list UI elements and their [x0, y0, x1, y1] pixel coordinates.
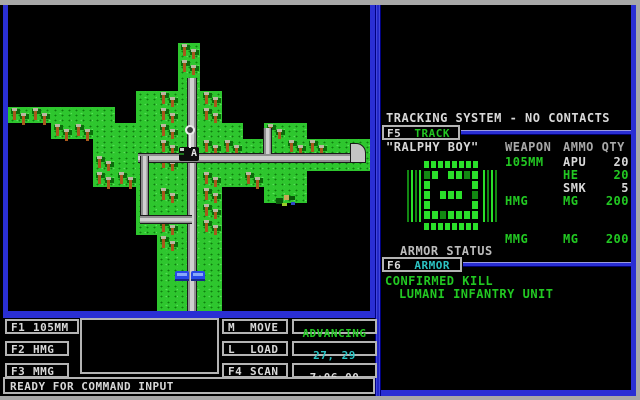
tree-trunk: [86, 132, 89, 141]
tree-trunk: [162, 191, 165, 200]
armor-body-block: [456, 191, 462, 199]
tree-trunk: [34, 111, 37, 120]
key-cap: F1: [11, 322, 33, 333]
armor-rear-block: [459, 223, 464, 230]
armor-rear-block: [438, 223, 443, 230]
terrain-tile: [200, 283, 222, 299]
key-f3-button[interactable]: F3MMG: [5, 363, 69, 378]
key-f4-button[interactable]: F4SCAN: [222, 363, 288, 378]
tree-trunk: [205, 143, 208, 152]
map-viewport[interactable]: A: [8, 5, 370, 311]
kill-confirmation-line2: LUMANI INFANTRY UNIT: [399, 288, 554, 300]
tree-trunk: [98, 159, 101, 168]
tree-icon: [253, 177, 263, 190]
tree-trunk: [290, 143, 293, 152]
armor-body-block: [440, 211, 446, 219]
terrain-tile: [285, 171, 307, 187]
ammo-qty: 20: [585, 169, 629, 181]
right-frame-bar: [636, 0, 640, 400]
tree-trunk: [205, 223, 208, 232]
terrain-tile: [200, 123, 222, 139]
terrain-tile: [157, 187, 179, 203]
movement-status-box: ADVANCING: [292, 319, 377, 334]
control-area: F1105MMF2HMGF3MMG MMOVELLOADF4SCAN ADVAN…: [3, 318, 375, 376]
armor-body-block: [472, 181, 478, 189]
key-label: LOAD: [250, 343, 279, 356]
armor-body-block: [472, 211, 478, 219]
tree-trunk: [162, 127, 165, 136]
terrain-tile: [157, 235, 179, 251]
ammo-qty: 200: [585, 195, 629, 207]
tree-trunk: [162, 143, 165, 152]
armor-body-block: [448, 171, 454, 179]
tree-icon: [104, 177, 114, 190]
armor-rear-block: [452, 223, 457, 230]
armor-body-block: [432, 211, 438, 219]
armor-rear-block: [424, 223, 429, 230]
tank-armor-icon: [407, 157, 499, 241]
armor-body-block: [440, 191, 446, 199]
terrain-tile: [51, 107, 73, 123]
tree-trunk: [162, 239, 165, 248]
armor-body-block: [448, 211, 454, 219]
armor-track-right: [487, 170, 489, 222]
tree-trunk: [311, 143, 314, 152]
terrain-tile: [115, 171, 137, 187]
armor-front-block: [431, 161, 436, 168]
map-cursor-icon[interactable]: [185, 125, 195, 135]
friendly-vehicle-unit[interactable]: [175, 271, 189, 281]
friendly-vehicle-unit[interactable]: [191, 271, 205, 281]
track-function-button[interactable]: F5 TRACK: [382, 125, 460, 140]
tree-trunk: [205, 95, 208, 104]
weapon-name: HMG: [505, 195, 557, 207]
armor-body-block: [424, 211, 430, 219]
tree-trunk: [205, 111, 208, 120]
key-l-button[interactable]: LLOAD: [222, 341, 288, 356]
player-tank-unit[interactable]: A: [179, 147, 199, 161]
weapon-name: MMG: [505, 233, 557, 245]
terrain-tile: [93, 155, 115, 171]
tank-gun: [179, 153, 184, 155]
key-label: 105MM: [33, 321, 69, 334]
terrain-tile: [285, 123, 307, 139]
terrain-tile: [200, 219, 222, 235]
armor-front-block: [459, 161, 464, 168]
terrain-tile: [200, 91, 222, 107]
armor-front-block: [473, 161, 478, 168]
road-segment: [140, 156, 149, 221]
infantry-figure: [291, 202, 295, 205]
armor-status-label: ARMOR STATUS: [400, 245, 493, 257]
terrain-tile: [200, 171, 222, 187]
terrain-tile: [178, 59, 200, 75]
f5-key-label: F5: [387, 127, 401, 140]
terrain-tile: [72, 107, 94, 123]
tracking-status-line: TRACKING SYSTEM - NO CONTACTS: [386, 112, 610, 124]
terrain-tile: [157, 123, 179, 139]
key-cap: F3: [11, 366, 33, 377]
tree-icon: [40, 113, 50, 126]
vehicle-tracks: [191, 279, 205, 281]
armor-body-block: [432, 171, 438, 179]
armor-body-block: [424, 171, 430, 179]
terrain-tile: [115, 155, 137, 171]
armor-body-block: [424, 201, 430, 209]
terrain-tile: [200, 251, 222, 267]
armor-track-left: [411, 170, 413, 222]
armor-body-block: [472, 171, 478, 179]
road-segment: [138, 153, 356, 163]
key-cap: F4: [228, 366, 250, 377]
key-cap: F2: [11, 344, 33, 355]
tree-trunk: [120, 175, 123, 184]
armor-rear-block: [431, 223, 436, 230]
road-segment: [350, 143, 366, 163]
terrain-tile: [29, 107, 51, 123]
armor-body-block: [472, 201, 478, 209]
armor-track-right: [495, 170, 497, 222]
terrain-tile: [157, 283, 179, 299]
terrain-tile: [157, 171, 179, 187]
key-m-button[interactable]: MMOVE: [222, 319, 288, 334]
tree-trunk: [129, 180, 132, 189]
mission-clock-box: 7:06.00: [292, 363, 377, 378]
tree-trunk: [247, 175, 250, 184]
coordinates-box: 27, 29: [292, 341, 377, 356]
armor-body-block: [456, 211, 462, 219]
tree-icon: [83, 129, 93, 142]
tree-trunk: [162, 111, 165, 120]
tree-trunk: [205, 207, 208, 216]
road-segment: [263, 128, 272, 154]
map-coordinates: 27, 29: [313, 349, 356, 362]
terrain-tile: [264, 171, 286, 187]
armor-rear-block: [473, 223, 478, 230]
terrain-tile: [93, 171, 115, 187]
terrain-tile: [200, 187, 222, 203]
terrain-tile: [93, 123, 115, 139]
terrain-tile: [136, 107, 158, 123]
armor-label: ARMOR: [414, 259, 450, 272]
armor-divider-line: [463, 262, 631, 267]
tree-trunk: [56, 127, 59, 136]
armor-front-block: [445, 161, 450, 168]
terrain-tile: [200, 107, 222, 123]
tracking-panel: TRACKING SYSTEM - NO CONTACTS F5 TRACK "…: [381, 5, 636, 396]
armor-track-left: [415, 170, 417, 222]
command-prompt-text: READY FOR COMMAND INPUT: [10, 381, 174, 392]
tree-trunk: [162, 95, 165, 104]
road-segment: [140, 215, 192, 224]
armor-body-block: [424, 181, 430, 189]
f6-key-label: F6: [387, 259, 401, 272]
terrain-tile: [242, 171, 264, 187]
armor-front-block: [424, 161, 429, 168]
weapon-name: 105MM: [505, 156, 557, 168]
terrain-tile: [157, 299, 179, 311]
tree-trunk: [226, 143, 229, 152]
terrain-tile: [115, 123, 137, 139]
ammo-qty-column-header: AMMO QTY: [563, 141, 625, 153]
tree-trunk: [98, 175, 101, 184]
armor-body-block: [464, 171, 470, 179]
message-display-box: [80, 318, 219, 374]
terrain-tile: [93, 107, 115, 123]
terrain-tile: [157, 251, 179, 267]
tree-trunk: [183, 47, 186, 56]
key-cap: L: [228, 344, 250, 355]
track-label: TRACK: [414, 127, 450, 140]
terrain-tile: [178, 43, 200, 59]
terrain-tile: [157, 107, 179, 123]
armor-track-left: [407, 170, 409, 222]
ammo-qty: 5: [585, 182, 629, 194]
key-cap: M: [228, 322, 250, 333]
armor-front-block: [452, 161, 457, 168]
armor-front-block: [466, 161, 471, 168]
terrain-tile: [200, 299, 222, 311]
vehicle-tracks: [175, 279, 189, 281]
armor-function-button[interactable]: F6 ARMOR: [382, 257, 462, 272]
bottom-frame-bar: [0, 396, 640, 400]
tree-icon: [126, 177, 136, 190]
tree-icon: [19, 113, 29, 126]
terrain-tile: [93, 139, 115, 155]
terrain-tile: [72, 123, 94, 139]
key-label: MOVE: [250, 321, 279, 334]
terrain-tile: [157, 91, 179, 107]
terrain-tile: [115, 139, 137, 155]
terrain-tile: [221, 123, 243, 139]
track-divider-line: [461, 130, 631, 135]
weapon-column-header: WEAPON: [505, 141, 551, 153]
tree-trunk: [22, 116, 25, 125]
tree-trunk: [205, 191, 208, 200]
terrain-tile: [200, 203, 222, 219]
vehicle-hatch: [193, 273, 203, 276]
tree-trunk: [65, 132, 68, 141]
command-input-bar[interactable]: READY FOR COMMAND INPUT: [3, 377, 375, 394]
tank-unit-label: A: [191, 148, 197, 159]
game-screen: A TRACKING SYSTEM - NO CONTACTS F5 TRACK…: [0, 0, 640, 400]
tree-icon: [62, 129, 72, 142]
key-f2-button[interactable]: F2HMG: [5, 341, 69, 356]
armor-rear-block: [466, 223, 471, 230]
terrain-tile: [136, 123, 158, 139]
armor-track-right: [491, 170, 493, 222]
terrain-tile: [51, 123, 73, 139]
tree-trunk: [205, 175, 208, 184]
key-f1-button[interactable]: F1105MM: [5, 319, 79, 334]
ammo-qty: 200: [585, 233, 629, 245]
armor-body-block: [424, 191, 430, 199]
tree-trunk: [107, 180, 110, 189]
tree-trunk: [183, 63, 186, 72]
armor-rear-block: [445, 223, 450, 230]
kill-confirmation-line1: CONFIRMED KILL: [385, 275, 493, 287]
vehicle-hatch: [177, 273, 187, 276]
map-cursor-stick: [189, 135, 191, 148]
armor-body-block: [456, 171, 462, 179]
tree-trunk: [256, 180, 259, 189]
tree-trunk: [77, 127, 80, 136]
infantry-unit[interactable]: [276, 193, 298, 208]
map-panel: A: [3, 5, 375, 318]
unit-callsign: "RALPHY BOY": [386, 141, 479, 153]
armor-body-block: [464, 211, 470, 219]
infantry-figure: [289, 196, 295, 200]
armor-front-block: [438, 161, 443, 168]
armor-track-right: [483, 170, 485, 222]
tank-detail: [180, 148, 184, 151]
terrain-tile: [200, 235, 222, 251]
armor-body-block: [472, 191, 478, 199]
infantry-figure: [282, 203, 287, 206]
armor-track-left: [419, 170, 421, 222]
tree-trunk: [162, 223, 165, 232]
tree-trunk: [43, 116, 46, 125]
ammo-qty: 20: [585, 156, 629, 168]
terrain-tile: [136, 91, 158, 107]
terrain-tile: [8, 107, 30, 123]
tree-trunk: [13, 111, 16, 120]
armor-body-block: [448, 191, 454, 199]
movement-status: ADVANCING: [302, 327, 366, 340]
key-label: HMG: [33, 343, 54, 356]
terrain-tile: [221, 171, 243, 187]
